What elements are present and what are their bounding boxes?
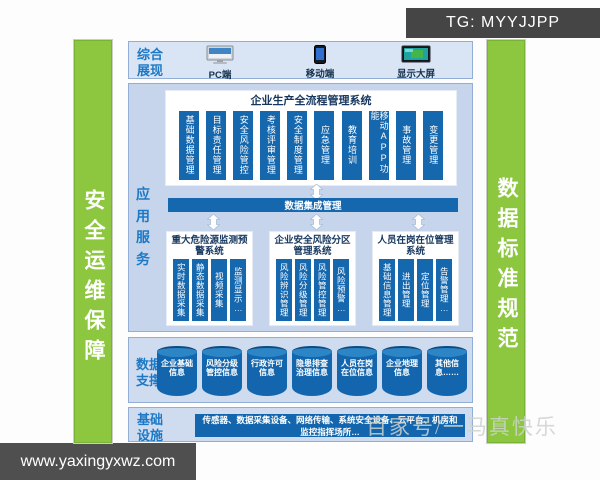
module-bar: 风险预警… (333, 259, 349, 321)
module-bar: 安全风险管控 (233, 111, 253, 180)
subsystem-box-hazard-monitoring: 重大危险源监测预警系统 实时数据采集 静态数据采集 视频采集 监测显示… (166, 231, 253, 326)
module-label: 告警管理… (440, 267, 449, 314)
cylinder-top (382, 346, 422, 357)
module-label: 风险管控管理 (318, 263, 327, 317)
module-bar: 定位管理 (417, 259, 433, 321)
module-label: 视频采集 (215, 272, 224, 308)
double-arrow-icon (412, 214, 425, 230)
database-cylinder: 企业地理信息 (382, 346, 422, 396)
infrastructure-panel: 基础设施 传感器、数据采集设备、网络传输、系统安全设备、云平台、机房和监控指挥场… (128, 407, 473, 442)
bigscreen-device: 显示大屏 (381, 45, 451, 80)
database-label: 行政许可信息 (250, 359, 284, 377)
mobile-icon (314, 45, 326, 64)
module-label: 考核评审管理 (266, 115, 275, 175)
module-label: 安全风险管控 (239, 115, 248, 175)
tg-watermark-badge: TG: MYYJJPP (406, 8, 600, 38)
module-label: 教育培训 (347, 125, 356, 165)
module-label: 变更管理 (428, 125, 437, 165)
module-label: 风险分级管理 (299, 263, 308, 317)
cylinder-top (247, 346, 287, 357)
architecture-diagram: TG: MYYJJPP www.yaxingyxwz.com 百家号/一马真快乐… (0, 0, 600, 480)
database-label: 风险分级管控信息 (205, 359, 239, 377)
database-label: 隐患排查治理信息 (295, 359, 329, 377)
module-bar: 变更管理 (423, 111, 443, 180)
module-bar: 考核评审管理 (260, 111, 280, 180)
subsystem-title: 人员在岗在位管理系统 (373, 232, 458, 259)
module-bar: 风险辨识管理 (276, 259, 292, 321)
subsystem-module-row: 基础信息管理 进出管理 定位管理 告警管理… (373, 259, 458, 321)
database-label: 人员在岗在位信息 (340, 359, 374, 377)
mobile-device: 移动端 (287, 45, 353, 80)
module-bar: 风险分级管理 (295, 259, 311, 321)
module-bar: 进出管理 (398, 259, 414, 321)
display-panel-label: 综合展现 (137, 47, 167, 80)
module-bar: 视频采集 (211, 259, 227, 321)
double-arrow-icon (310, 214, 323, 230)
bigscreen-icon (401, 45, 431, 64)
right-pillar: 数据标准规范 (487, 40, 525, 443)
process-system-box: 企业生产全流程管理系统 基础数据管理 目标责任管理 安全风险管控 考核评审管理 … (165, 90, 457, 186)
double-arrow-icon (207, 214, 220, 230)
subsystem-title: 重大危险源监测预警系统 (167, 232, 252, 259)
infrastructure-items-bar: 传感器、数据采集设备、网络传输、系统安全设备、云平台、机房和监控指挥场所… (195, 414, 465, 437)
database-label: 企业地理信息 (385, 359, 419, 377)
cylinder-top (427, 346, 467, 357)
database-cylinder: 人员在岗在位信息 (337, 346, 377, 396)
database-label: 其他信息…… (430, 359, 464, 377)
subsystem-module-row: 实时数据采集 静态数据采集 视频采集 监测显示… (167, 259, 252, 321)
module-bar: 基础信息管理 (379, 259, 395, 321)
module-bar: 基础数据管理 (179, 111, 199, 180)
process-module-row: 基础数据管理 目标责任管理 安全风险管控 考核评审管理 安全制度管理 应急管理 … (166, 108, 456, 180)
database-row: 企业基础信息 风险分级管控信息 行政许可信息 隐患排查治理信息 人员在岗在位信息 (157, 346, 467, 396)
data-support-panel: 数据支撑 企业基础信息 风险分级管控信息 行政许可信息 隐患排查治理信息 (128, 337, 473, 403)
module-bar: 教育培训 (342, 111, 362, 180)
module-bar: 告警管理… (436, 259, 452, 321)
site-watermark-badge: www.yaxingyxwz.com (0, 443, 196, 480)
database-cylinder: 企业基础信息 (157, 346, 197, 396)
pc-device-label: PC端 (187, 71, 253, 81)
module-bar: 移动APP功能 (369, 111, 389, 180)
cylinder-top (202, 346, 242, 357)
database-cylinder: 其他信息…… (427, 346, 467, 396)
module-label: 风险辨识管理 (280, 263, 289, 317)
pc-device: PC端 (187, 45, 253, 81)
module-label: 基础信息管理 (383, 263, 392, 317)
application-panel-label: 应用服务 (136, 184, 152, 271)
database-label: 企业基础信息 (160, 359, 194, 377)
process-system-title: 企业生产全流程管理系统 (166, 91, 456, 108)
database-cylinder: 隐患排查治理信息 (292, 346, 332, 396)
cylinder-top (292, 346, 332, 357)
cylinder-top (157, 346, 197, 357)
module-label: 监测显示… (234, 267, 243, 314)
module-label: 应急管理 (320, 125, 329, 165)
module-label: 目标责任管理 (212, 115, 221, 175)
application-panel: 应用服务 企业生产全流程管理系统 基础数据管理 目标责任管理 安全风险管控 考核… (128, 83, 473, 332)
module-label: 进出管理 (402, 272, 411, 308)
infrastructure-label: 基础设施 (137, 412, 167, 445)
module-bar: 实时数据采集 (173, 259, 189, 321)
module-bar: 安全制度管理 (287, 111, 307, 180)
module-bar: 事故管理 (396, 111, 416, 180)
subsystem-box-personnel-onduty: 人员在岗在位管理系统 基础信息管理 进出管理 定位管理 告警管理… (372, 231, 459, 326)
subsystem-title: 企业安全风险分区管理系统 (270, 232, 355, 259)
module-bar: 风险管控管理 (314, 259, 330, 321)
data-integration-bar: 数据集成管理 (168, 198, 458, 212)
display-panel: 综合展现 PC端 移动端 (128, 41, 473, 79)
database-cylinder: 行政许可信息 (247, 346, 287, 396)
module-bar: 静态数据采集 (192, 259, 208, 321)
cylinder-top (337, 346, 377, 357)
module-label: 基础数据管理 (185, 115, 194, 175)
left-pillar: 安全运维保障 (74, 40, 112, 443)
module-label: 事故管理 (401, 125, 410, 165)
module-label: 移动APP功能 (370, 111, 388, 180)
module-label: 静态数据采集 (196, 263, 205, 317)
right-pillar-label: 数据标准规范 (491, 177, 521, 442)
module-label: 风险预警… (337, 267, 346, 314)
module-label: 安全制度管理 (293, 115, 302, 175)
left-pillar-label: 安全运维保障 (78, 189, 108, 442)
module-bar: 目标责任管理 (206, 111, 226, 180)
database-cylinder: 风险分级管控信息 (202, 346, 242, 396)
module-label: 实时数据采集 (177, 263, 186, 317)
module-bar: 监测显示… (230, 259, 246, 321)
subsystem-module-row: 风险辨识管理 风险分级管理 风险管控管理 风险预警… (270, 259, 355, 321)
mobile-device-label: 移动端 (287, 70, 353, 80)
module-bar: 应急管理 (314, 111, 334, 180)
bigscreen-device-label: 显示大屏 (381, 70, 451, 80)
module-label: 定位管理 (421, 272, 430, 308)
pc-icon (205, 45, 235, 65)
subsystem-box-risk-zoning: 企业安全风险分区管理系统 风险辨识管理 风险分级管理 风险管控管理 风险预警… (269, 231, 356, 326)
